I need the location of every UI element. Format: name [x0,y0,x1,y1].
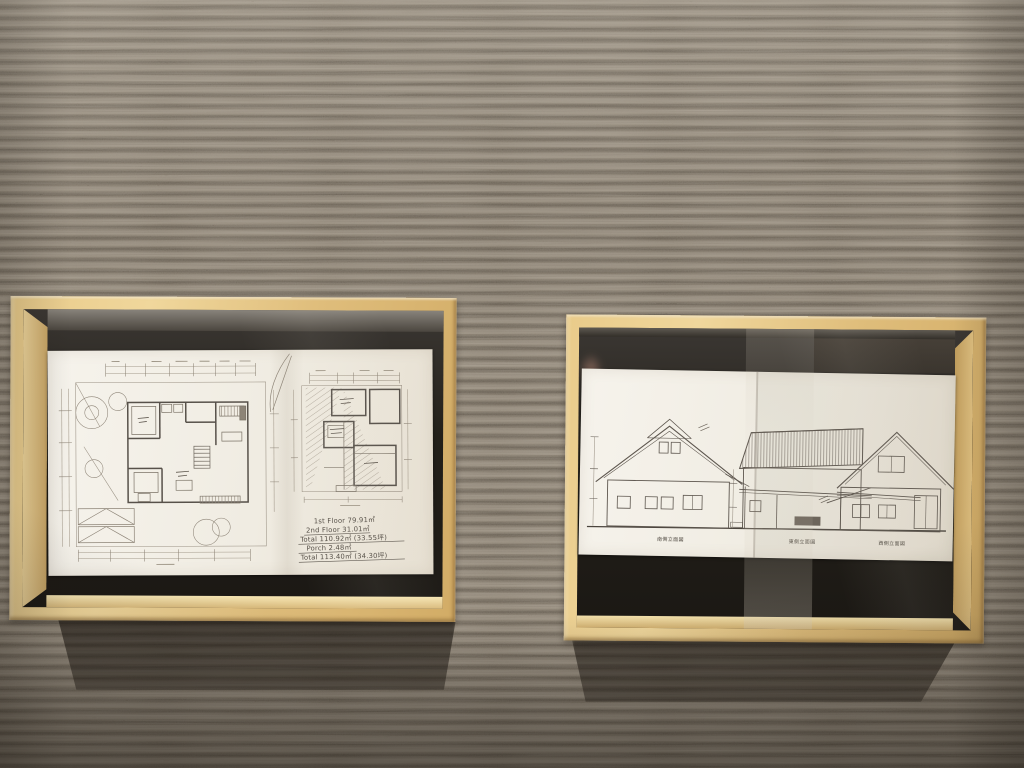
area-table: 1st Floor 79.91㎡ 2nd Floor 31.01㎡ Total … [298,514,405,562]
right-frame-inner-side [953,330,973,630]
first-floor-plan [59,361,280,565]
left-frame-inner-side [22,309,47,607]
left-frame-inner-top [48,309,444,332]
area-line-1: 1st Floor 79.91㎡ [314,515,375,526]
floor-plan-drawing: 1st Floor 79.91㎡ 2nd Floor 31.01㎡ Total … [47,349,433,576]
paper-fold-shadow [269,350,304,575]
left-frame-shadow [50,619,456,690]
caption-elevation-1: 南側立面図 [657,536,684,543]
left-frame-inner-sill [46,595,442,609]
parking-area [78,508,134,542]
stair-hatch [194,446,210,468]
right-frame-shadow [572,640,964,702]
left-picture-frame: 1st Floor 79.91㎡ 2nd Floor 31.01㎡ Total … [9,296,456,622]
glass-reflection-streak [744,329,814,630]
second-floor-plan [291,370,413,506]
floor-plan-paper: 1st Floor 79.91㎡ 2nd Floor 31.01㎡ Total … [47,349,433,576]
right-picture-frame: 南側立面図 東側立面図 西側立面図 [564,314,987,643]
photo-scene: 1st Floor 79.91㎡ 2nd Floor 31.01㎡ Total … [0,0,1024,768]
elevation-house-1 [589,418,751,529]
